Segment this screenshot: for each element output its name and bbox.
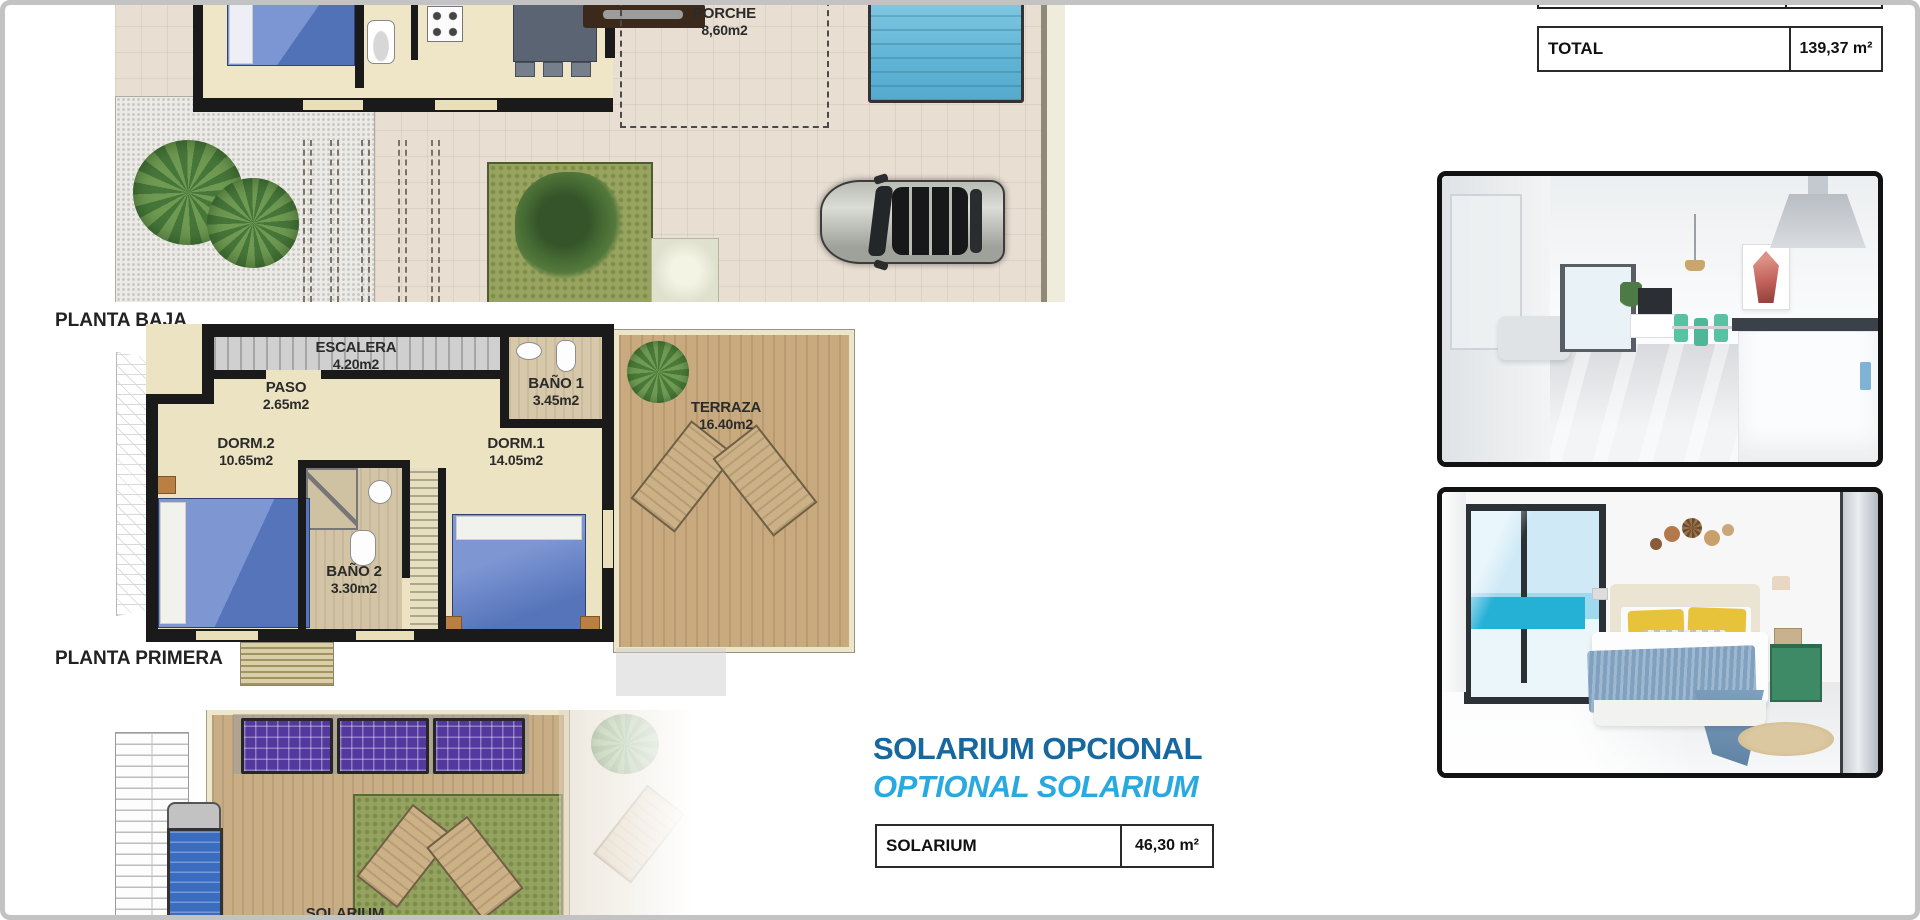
room-area: 4.20m2 [256, 357, 456, 373]
room-label-paso: PASO 2.65m2 [226, 380, 346, 412]
window-sill [196, 631, 258, 640]
bed-base [1594, 700, 1766, 726]
car-roof [892, 187, 968, 255]
window [1464, 504, 1606, 704]
photo-living-kitchen [1437, 171, 1883, 467]
solar-panel [433, 718, 525, 774]
solarium-lawn [353, 794, 563, 920]
fade-overlay [559, 710, 710, 920]
palm-leaf-art [1749, 251, 1783, 303]
wall-plate-decor [1682, 518, 1702, 538]
toilet [556, 340, 576, 372]
room-label-escalera: ESCALERA 4.20m2 [256, 340, 456, 372]
dining-chair [515, 62, 535, 77]
wall [438, 468, 446, 642]
wall-art-frame [1742, 244, 1790, 310]
sun-lounger [712, 424, 817, 536]
bed-pillow [456, 516, 582, 540]
car-rear-window [970, 189, 982, 253]
total-table: TOTAL 139,37 m² [1537, 26, 1883, 72]
wall [500, 419, 614, 428]
dining-chair [543, 62, 563, 77]
room-label-dorm1: DORM.1 14.05m2 [436, 436, 596, 468]
wall [602, 324, 614, 642]
room-area: 16.40m2 [616, 417, 836, 433]
porch-area: PORCHE 8,60m2 [620, 0, 829, 128]
terrace-deck [614, 330, 854, 652]
dining-chair [571, 62, 591, 77]
bathroom-sink [516, 342, 542, 360]
solarium-plan: SOLARIUM [115, 710, 710, 920]
room-name: PORCHE [622, 6, 827, 23]
boundary-strip [1047, 0, 1065, 302]
surface-table-cut-row [1537, 0, 1883, 9]
wall-plate-decor [1664, 526, 1680, 542]
pergola-line [398, 140, 407, 302]
room-name: TERRAZA [616, 400, 836, 417]
glass-reflection [1471, 511, 1599, 697]
room-area: 2.65m2 [226, 397, 346, 413]
island-countertop [1732, 318, 1878, 331]
solarium-table-label: SOLARIUM [877, 826, 1120, 866]
room-area: 3.30m2 [298, 581, 410, 597]
table-lamp [1772, 576, 1790, 590]
room-label-solarium: SOLARIUM [265, 906, 425, 920]
bed-pillow [229, 2, 253, 64]
wall [355, 0, 364, 88]
adjacent-terrace-faded [559, 710, 710, 920]
room-name: PASO [226, 380, 346, 397]
plant-icon [627, 341, 689, 403]
room-name: DORM.2 [176, 436, 316, 453]
table-divider [1785, 0, 1787, 7]
solar-collector-panel [167, 828, 223, 920]
room-label-bano2: BAÑO 2 3.30m2 [298, 564, 410, 596]
kitchen-island [1738, 331, 1880, 464]
car-top-view [820, 180, 1005, 264]
wall [411, 0, 418, 60]
photo-bedroom [1437, 487, 1883, 778]
total-table-value: 139,37 m² [1789, 28, 1881, 70]
room-label-porche: PORCHE 8,60m2 [622, 6, 827, 38]
terrace-door-sill [603, 510, 613, 568]
solar-panel [337, 718, 429, 774]
garden-light [651, 238, 719, 302]
room-area: 14.05m2 [436, 453, 596, 469]
room-name: SOLARIUM [265, 906, 425, 920]
door-sill [435, 100, 497, 110]
wall [202, 324, 612, 337]
room-area: 3.45m2 [501, 393, 611, 409]
shower [306, 468, 358, 530]
room-label-bano1: BAÑO 1 3.45m2 [501, 376, 611, 408]
wall [298, 460, 306, 642]
green-chair [1694, 318, 1708, 346]
room-label-terraza: TERRAZA 16.40m2 [616, 400, 836, 432]
garden-lawn [487, 162, 653, 302]
solarium-table: SOLARIUM 46,30 m² [875, 824, 1214, 868]
wall [146, 394, 158, 642]
garden-bush [515, 172, 623, 280]
wall [402, 460, 410, 578]
towel [1860, 362, 1871, 390]
toilet [350, 530, 376, 566]
jute-rug [1738, 722, 1834, 756]
sun-lounger [630, 420, 735, 532]
first-floor-plan: ESCALERA 4.20m2 PASO 2.65m2 BAÑO 1 3.45m… [116, 318, 856, 698]
bed-pillow [160, 502, 186, 624]
bathroom-sink [368, 480, 392, 504]
closet [410, 468, 438, 633]
doormat [240, 642, 334, 686]
wall [193, 98, 613, 112]
dining-table-top [1672, 326, 1734, 329]
solar-panel [241, 718, 333, 774]
wall [202, 324, 214, 402]
wall-lamp [1592, 588, 1608, 600]
bathroom-sink [367, 20, 395, 64]
shadow-patch [616, 648, 726, 696]
floor-title-planta-primera: PLANTA PRIMERA [55, 648, 223, 670]
room-area: 10.65m2 [176, 453, 316, 469]
wall-plate-decor [1722, 524, 1734, 536]
mirror-wardrobe [1840, 492, 1881, 773]
palm-tree-icon [207, 178, 299, 268]
heading-optional-solarium: OPTIONAL SOLARIUM [873, 769, 1198, 805]
tv [1638, 288, 1672, 314]
room-name: BAÑO 1 [501, 376, 611, 393]
wall-plate-decor [1704, 530, 1720, 546]
pendant-lamp [1685, 260, 1705, 271]
pergola-line [431, 140, 440, 302]
sheer-curtain [1442, 492, 1466, 692]
room-area: 8,60m2 [622, 23, 827, 39]
heading-solarium-opcional: SOLARIUM OPCIONAL [873, 731, 1202, 767]
pendant-cord [1694, 214, 1696, 262]
room-name: ESCALERA [256, 340, 456, 357]
kitchen-hob [427, 6, 463, 42]
room-name: DORM.1 [436, 436, 596, 453]
hood-chimney [1808, 176, 1828, 196]
room-label-dorm2: DORM.2 10.65m2 [176, 436, 316, 468]
total-table-label: TOTAL [1539, 28, 1789, 70]
pergola-line [361, 140, 370, 302]
room-name: BAÑO 2 [298, 564, 410, 581]
wall-plate-decor [1650, 538, 1662, 550]
ground-floor-plan: PORCHE 8,60m2 [115, 0, 1065, 302]
solarium-table-value: 46,30 m² [1120, 826, 1212, 866]
pergola-line [303, 140, 312, 302]
swimming-pool [868, 0, 1024, 103]
door-sill [303, 100, 363, 110]
wall [193, 0, 203, 112]
brochure-page: { "floor_labels": { "ground": "PLANTA BA… [0, 0, 1920, 920]
window-sill [356, 631, 414, 640]
green-nightstand [1770, 644, 1822, 702]
pergola-line [330, 140, 339, 302]
